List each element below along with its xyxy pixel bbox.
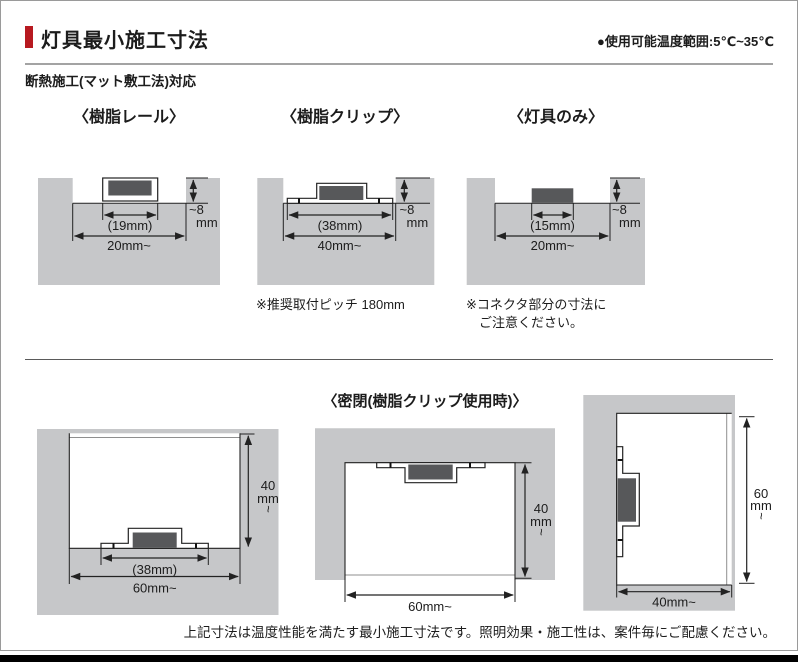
red-accent-bar: [25, 26, 33, 48]
fixture-only-diagram: ~8 mm (15mm) 20mm~: [460, 177, 670, 289]
opening-width-label: 40mm~: [318, 238, 362, 253]
mounting-pitch-note: ※推奨取付ピッチ 180mm: [256, 296, 405, 314]
catalog-spec-page: 灯具最小施工寸法 ●使用可能温度範囲:5℃~35℃ 断熱施工(マット敷工法)対応…: [0, 0, 798, 662]
resin-clip-diagram: ~8 mm (38mm) 40mm~: [252, 177, 452, 289]
footer-disclaimer: 上記寸法は温度性能を満たす最小施工寸法です。照明効果・施工性は、案件毎にご配慮く…: [184, 621, 776, 641]
height-unit-label: mm: [257, 491, 279, 506]
light-fixture: [532, 188, 574, 203]
cavity-width-label: 40mm~: [652, 595, 696, 610]
diagram-title-resin-rail: 〈樹脂レール〉: [29, 103, 229, 127]
header-divider: [25, 63, 773, 65]
depth-unit-label: mm: [196, 215, 218, 230]
clip-screw-mark: [469, 463, 471, 468]
fixture-width-label: (19mm): [108, 218, 153, 233]
height-tilde-label: ~: [754, 512, 769, 520]
connector-caution-line2: ご注意ください。: [479, 314, 606, 332]
clip-screw-mark: [113, 543, 115, 548]
fixture-width-label: (38mm): [132, 562, 177, 577]
light-fixture: [319, 186, 363, 200]
depth-unit-label: mm: [619, 215, 641, 230]
fixture-width-label: (38mm): [318, 218, 363, 233]
sealed-ceiling-mount-diagram: 40 mm ~ 60mm~: [315, 428, 560, 620]
fixture-width-label: (15mm): [530, 218, 575, 233]
sealed-wall-mount-diagram: 60 mm ~ 40mm~: [583, 395, 795, 617]
diagram-title-fixture-only: 〈灯具のみ〉: [456, 103, 656, 127]
sealed-floor-mount-diagram: 40 mm ~ (38mm) 60mm~: [37, 428, 285, 620]
page-title: 灯具最小施工寸法: [41, 24, 209, 53]
clip-screw-mark: [618, 539, 623, 541]
clip-screw-mark: [618, 459, 623, 461]
light-fixture: [108, 181, 151, 196]
clip-screw-mark: [390, 463, 392, 468]
enclosure-block: [315, 428, 555, 580]
light-fixture: [618, 478, 636, 521]
height-unit-label: mm: [750, 498, 772, 513]
height-unit-label: mm: [530, 514, 552, 529]
opening-width-label: 20mm~: [531, 238, 575, 253]
insulation-method-note: 断熱施工(マット敷工法)対応: [25, 70, 196, 90]
clip-screw-mark: [195, 543, 197, 548]
cavity-width-label: 60mm~: [408, 599, 452, 614]
height-tilde-label: ~: [534, 528, 549, 536]
clip-screw-mark: [378, 198, 380, 203]
connector-caution-line1: ※コネクタ部分の寸法に: [466, 297, 606, 312]
section-divider: [25, 359, 773, 360]
temperature-range-note: ●使用可能温度範囲:5℃~35℃: [597, 31, 774, 50]
opening-width-label: 20mm~: [107, 238, 151, 253]
light-fixture: [408, 465, 452, 480]
connector-caution-note: ※コネクタ部分の寸法に ご注意ください。: [466, 296, 606, 332]
light-fixture: [133, 533, 177, 548]
resin-rail-diagram: ~8 mm (19mm) 20mm~: [26, 177, 226, 289]
bottom-black-bar: [0, 655, 798, 662]
height-tilde-label: ~: [261, 505, 276, 513]
diagram-title-resin-clip: 〈樹脂クリップ〉: [245, 103, 445, 127]
clip-screw-mark: [298, 198, 300, 203]
cavity-width-label: 60mm~: [133, 581, 177, 596]
depth-unit-label: mm: [407, 215, 429, 230]
